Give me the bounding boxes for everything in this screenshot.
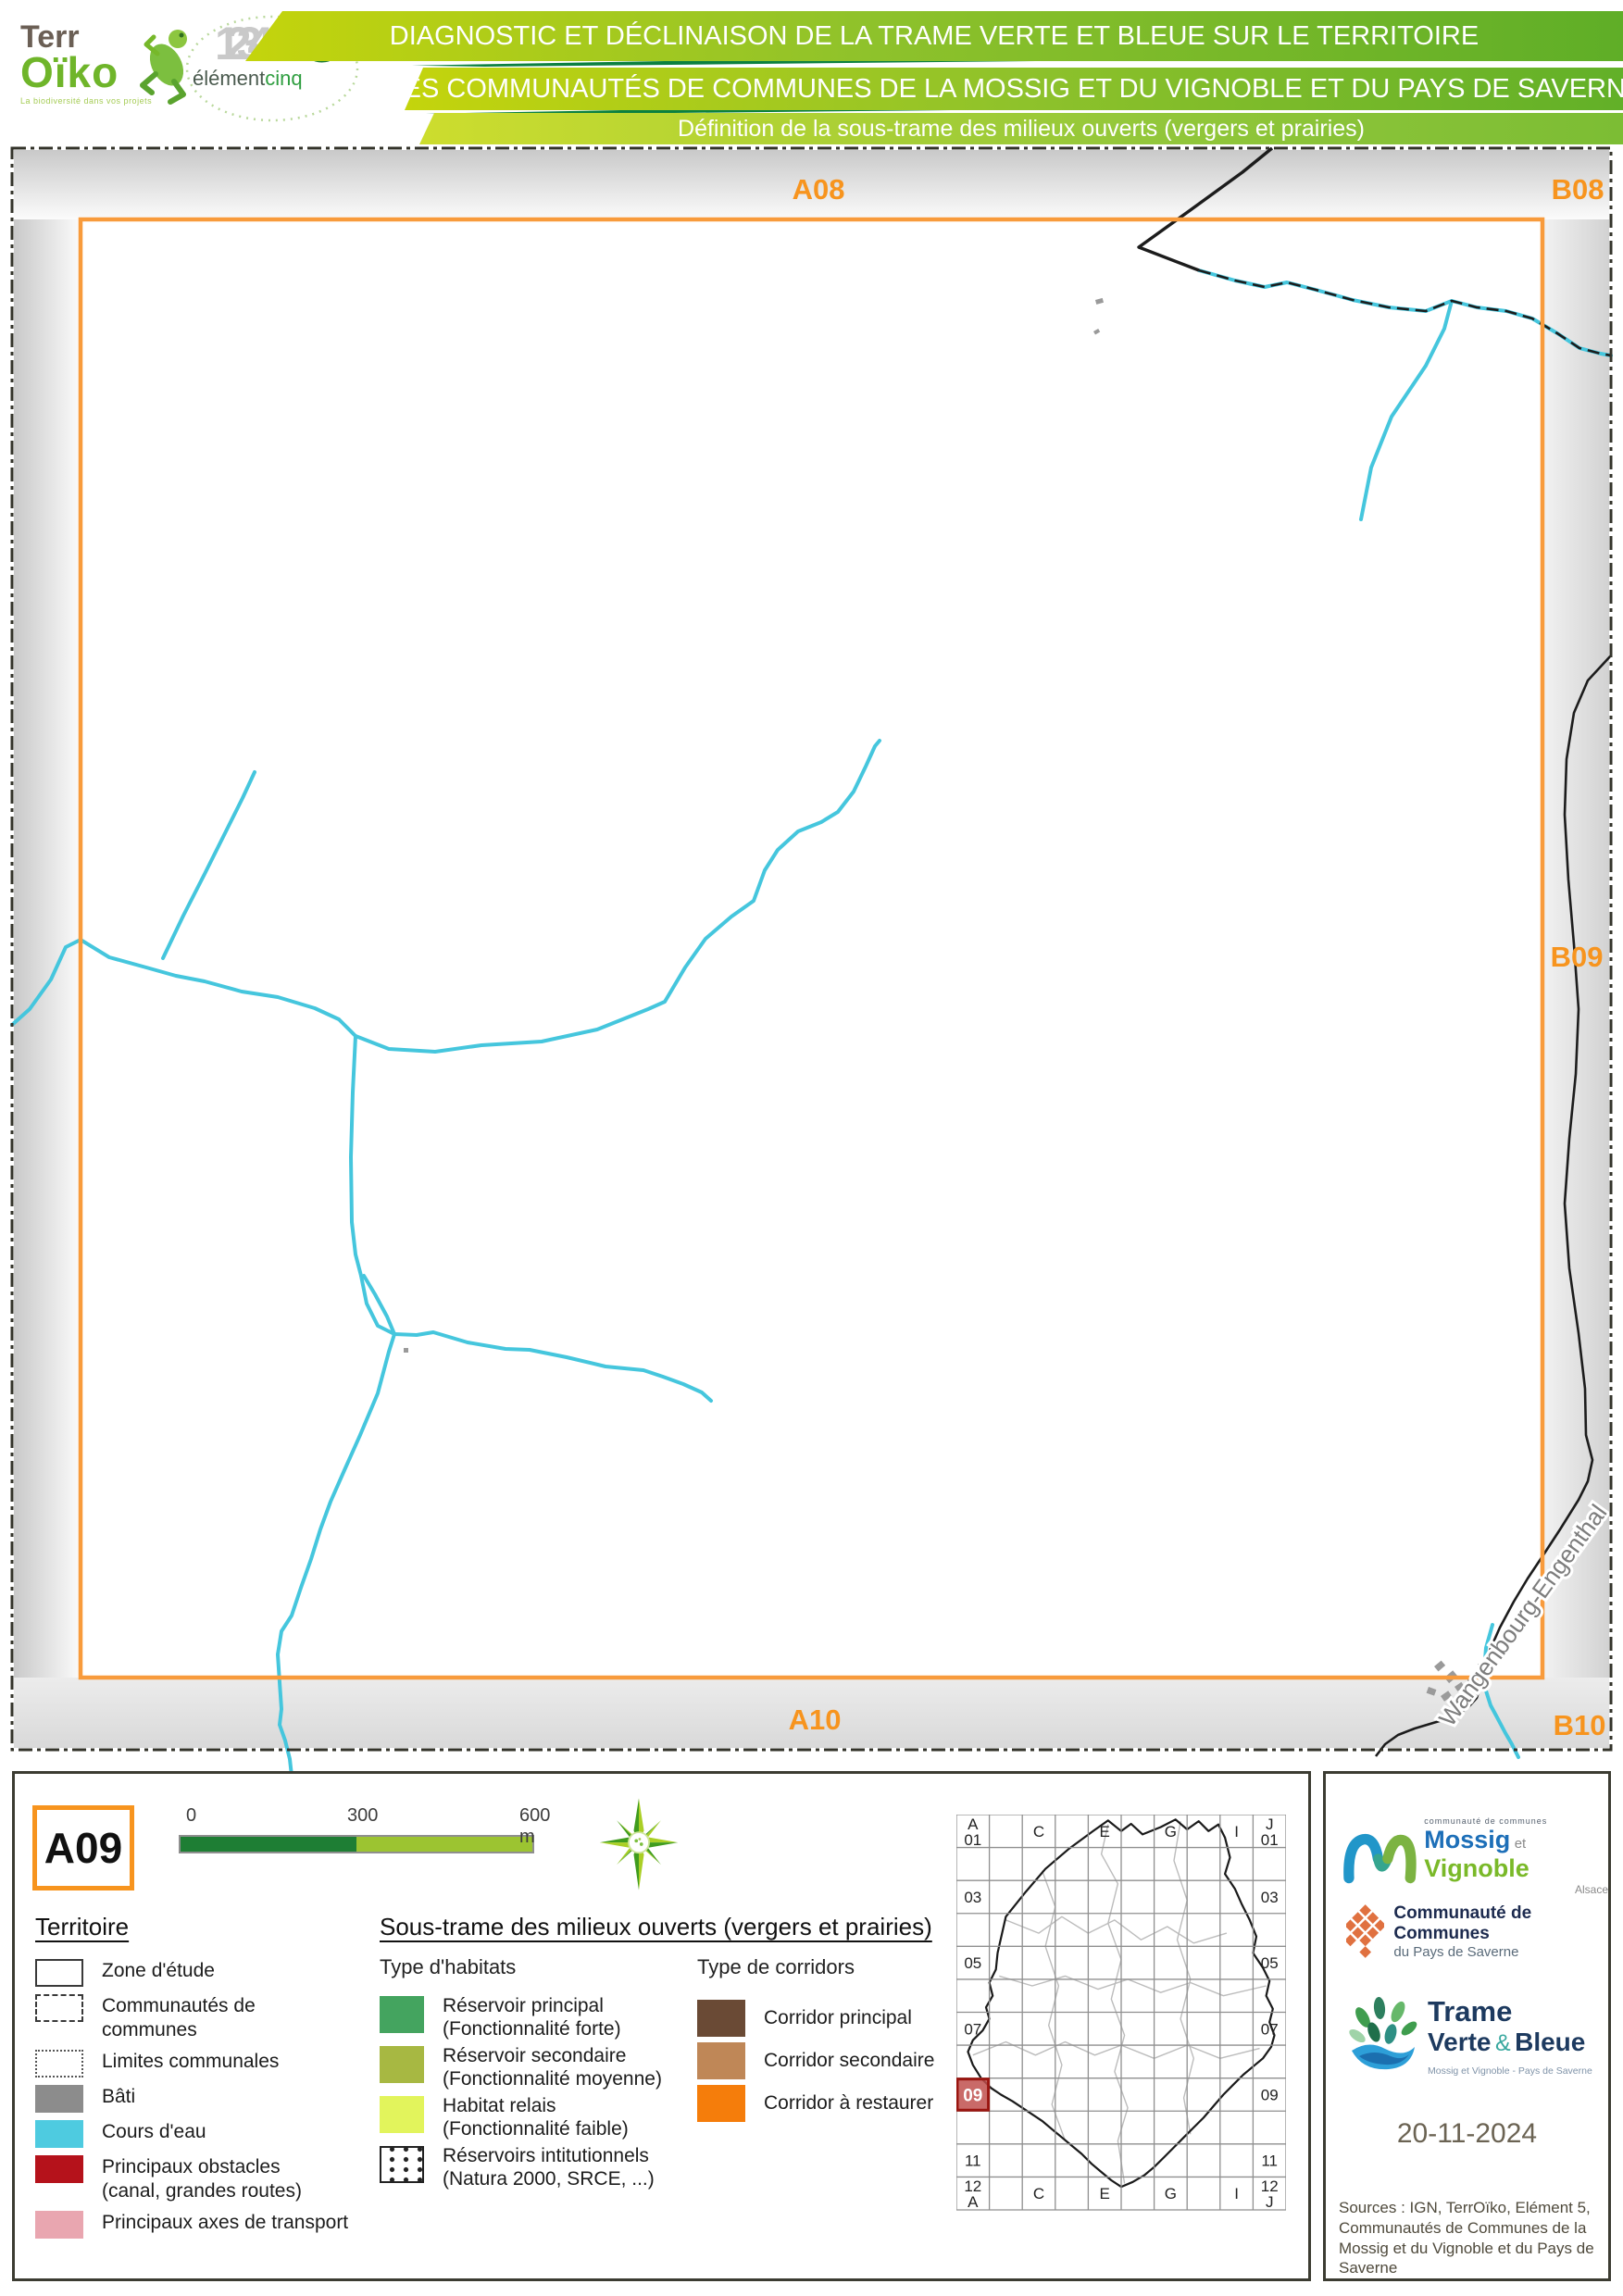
legend-panel: A09 0 300 600 m Territoire Zone d'étudeC… [12,1771,1311,2281]
legend-swatch [35,2085,83,2113]
index-grid-label: G [1165,2185,1177,2202]
legend-item: Corridor principal [697,2000,934,2037]
legend-item-label: Bâti [102,2085,135,2109]
legend-item-label: Habitat relais (Fonctionnalité faible) [443,2094,629,2140]
legend-item: Corridor à restaurer [697,2085,934,2122]
sheet-index-map: A01CEGIJ0103030505070709111112ACEGI12J09 [956,1815,1286,2213]
grid-cell-label: A08 [793,173,845,206]
title-banner-line1: DIAGNOSTIC ET DÉCLINAISON DE LA TRAME VE… [245,11,1623,61]
habitats-legend-list: Réservoir principal (Fonctionnalité fort… [380,1994,662,2190]
legend-swatch [380,2046,424,2083]
legend-item: Réservoir principal (Fonctionnalité fort… [380,1994,662,2040]
index-grid-label: 11 [965,2152,981,2170]
legend-swatch [697,2085,745,2122]
legend-item: Zone d'étude [35,1959,348,1987]
index-grid-label: E [1100,2185,1110,2202]
grid-cell-label: B10 [1554,1709,1606,1741]
legend-swatch [380,2146,424,2183]
legend-item-label: Corridor à restaurer [764,2091,933,2115]
index-grid-label: 05 [1261,1954,1279,1972]
tvb-leaves-icon [1346,1997,1420,2077]
title-banner-line2: DES COMMUNAUTÉS DE COMMUNES DE LA MOSSIG… [405,68,1623,110]
legend-swatch [35,2120,83,2148]
sheet-code-badge: A09 [32,1805,134,1890]
legend-item: Réservoirs intitutionnels (Natura 2000, … [380,2144,662,2190]
scale-tick-0: 0 [186,1805,196,1827]
index-grid-label: C [1033,2185,1044,2202]
mossig-vignoble-logo: communauté de communes Mossig et Vignobl… [1342,1816,1608,1896]
map-canvas: A08B08B09A10B10Wangenbourg-Engenthal [0,0,1623,1852]
grid-cell-label: B08 [1552,173,1604,206]
legend-item-label: Cours d'eau [102,2120,206,2144]
scale-tick-300: 300 [347,1805,378,1827]
building-mark [404,1348,408,1353]
index-grid-label: 11 [1261,2152,1278,2170]
map-background [14,150,1609,1748]
index-grid-label: 09 [1261,2086,1279,2103]
legend-item: Habitat relais (Fonctionnalité faible) [380,2094,662,2140]
legend-swatch [35,2155,83,2183]
map-date: 20-11-2024 [1326,2118,1608,2150]
legend-item-label: Réservoir principal (Fonctionnalité fort… [443,1994,621,2040]
legend-item-label: Réservoirs intitutionnels (Natura 2000, … [443,2144,655,2190]
territoire-legend-list: Zone d'étudeCommunautés de communesLimit… [35,1959,348,2239]
legend-swatch [697,2042,745,2079]
scale-bar: 0 300 600 m [179,1805,568,1853]
grid-cell-label: B09 [1551,941,1604,973]
territoire-heading: Territoire [35,1913,129,1941]
map-sheet-page: { "theme":{ "banner_gradient_left":"#c4d… [0,0,1623,2296]
index-grid-label: I [1234,1823,1239,1841]
legend-item: Bâti [35,2085,348,2113]
index-grid-label: G [1165,1823,1177,1841]
legend-item-label: Principaux obstacles (canal, grandes rou… [102,2155,302,2203]
compass-rose-icon [596,1794,681,1894]
legend-swatch [35,2050,83,2078]
index-commune-line [1174,1821,1193,2134]
neighbor-band-left [14,150,81,1748]
legend-item: Communautés de communes [35,1994,348,2042]
legend-item-label: Communautés de communes [102,1994,256,2042]
legend-item-label: Limites communales [102,2050,279,2074]
corridors-subheading: Type de corridors [697,1955,855,1979]
sources-note: Sources : IGN, TerrOïko, Elément 5, Comm… [1339,2198,1600,2278]
index-commune-line [1042,1871,1066,2141]
index-grid-label: 07 [964,2020,981,2038]
index-grid-label: 01 [964,1831,981,1849]
legend-item: Cours d'eau [35,2120,348,2148]
legend-swatch [35,1959,83,1987]
legend-item-label: Corridor secondaire [764,2049,934,2073]
saverne-diamond-icon [1346,1902,1384,1961]
mossig-m-icon [1342,1828,1417,1885]
legend-swatch [380,1996,424,2033]
index-grid-label: 05 [964,1954,981,1972]
legend-swatch [697,2000,745,2037]
index-grid-label: C [1033,1823,1044,1841]
legend-swatch [380,2096,424,2133]
index-grid-label: A [968,2193,979,2211]
legend-item-label: Principaux axes de transport [102,2211,348,2235]
legend-item: Corridor secondaire [697,2042,934,2079]
index-commune-line [1102,1825,1129,2184]
scale-bar-graphic [179,1835,534,1853]
legend-item-label: Corridor principal [764,2006,912,2030]
index-commune-line [1005,1916,1227,1943]
corridors-legend-list: Corridor principalCorridor secondaireCor… [697,2000,934,2122]
index-grid-label: J [1266,2193,1274,2211]
legend-item-label: Zone d'étude [102,1959,215,1983]
index-current-sheet-label: 09 [963,2086,982,2105]
index-grid-label: E [1100,1823,1110,1841]
index-grid-label: I [1234,2185,1239,2202]
tvb-subtitle: Mossig et Vignoble - Pays de Saverne [1428,2065,1592,2077]
legend-item-label: Réservoir secondaire (Fonctionnalité moy… [443,2044,662,2090]
scale-tick-600: 600 m [519,1805,568,1848]
legend-item: Principaux axes de transport [35,2211,348,2239]
index-grid-label: 07 [1261,2020,1279,2038]
index-grid-label: 03 [1261,1889,1279,1906]
subtitle-banner: Définition de la sous-trame des milieux … [419,113,1623,144]
grid-cell-label: A10 [789,1703,842,1736]
trame-verte-bleue-logo: Trame Verte & Bleue Mossig et Vignoble -… [1346,1996,1592,2077]
index-commune-line [973,2042,1260,2059]
credits-panel: communauté de communes Mossig et Vignobl… [1323,1771,1611,2281]
index-grid-label: 01 [1261,1831,1279,1849]
legend-item: Principaux obstacles (canal, grandes rou… [35,2155,348,2203]
pays-de-saverne-logo: Communauté de Communes du Pays de Savern… [1346,1902,1608,1961]
legend-item: Réservoir secondaire (Fonctionnalité moy… [380,2044,662,2090]
legend-swatch [35,1994,83,2022]
legend-swatch [35,2211,83,2239]
index-grid-label: 03 [964,1889,981,1906]
habitats-subheading: Type d'habitats [380,1955,516,1979]
soustrame-heading: Sous-trame des milieux ouverts (vergers … [380,1913,932,1941]
legend-item: Limites communales [35,2050,348,2078]
